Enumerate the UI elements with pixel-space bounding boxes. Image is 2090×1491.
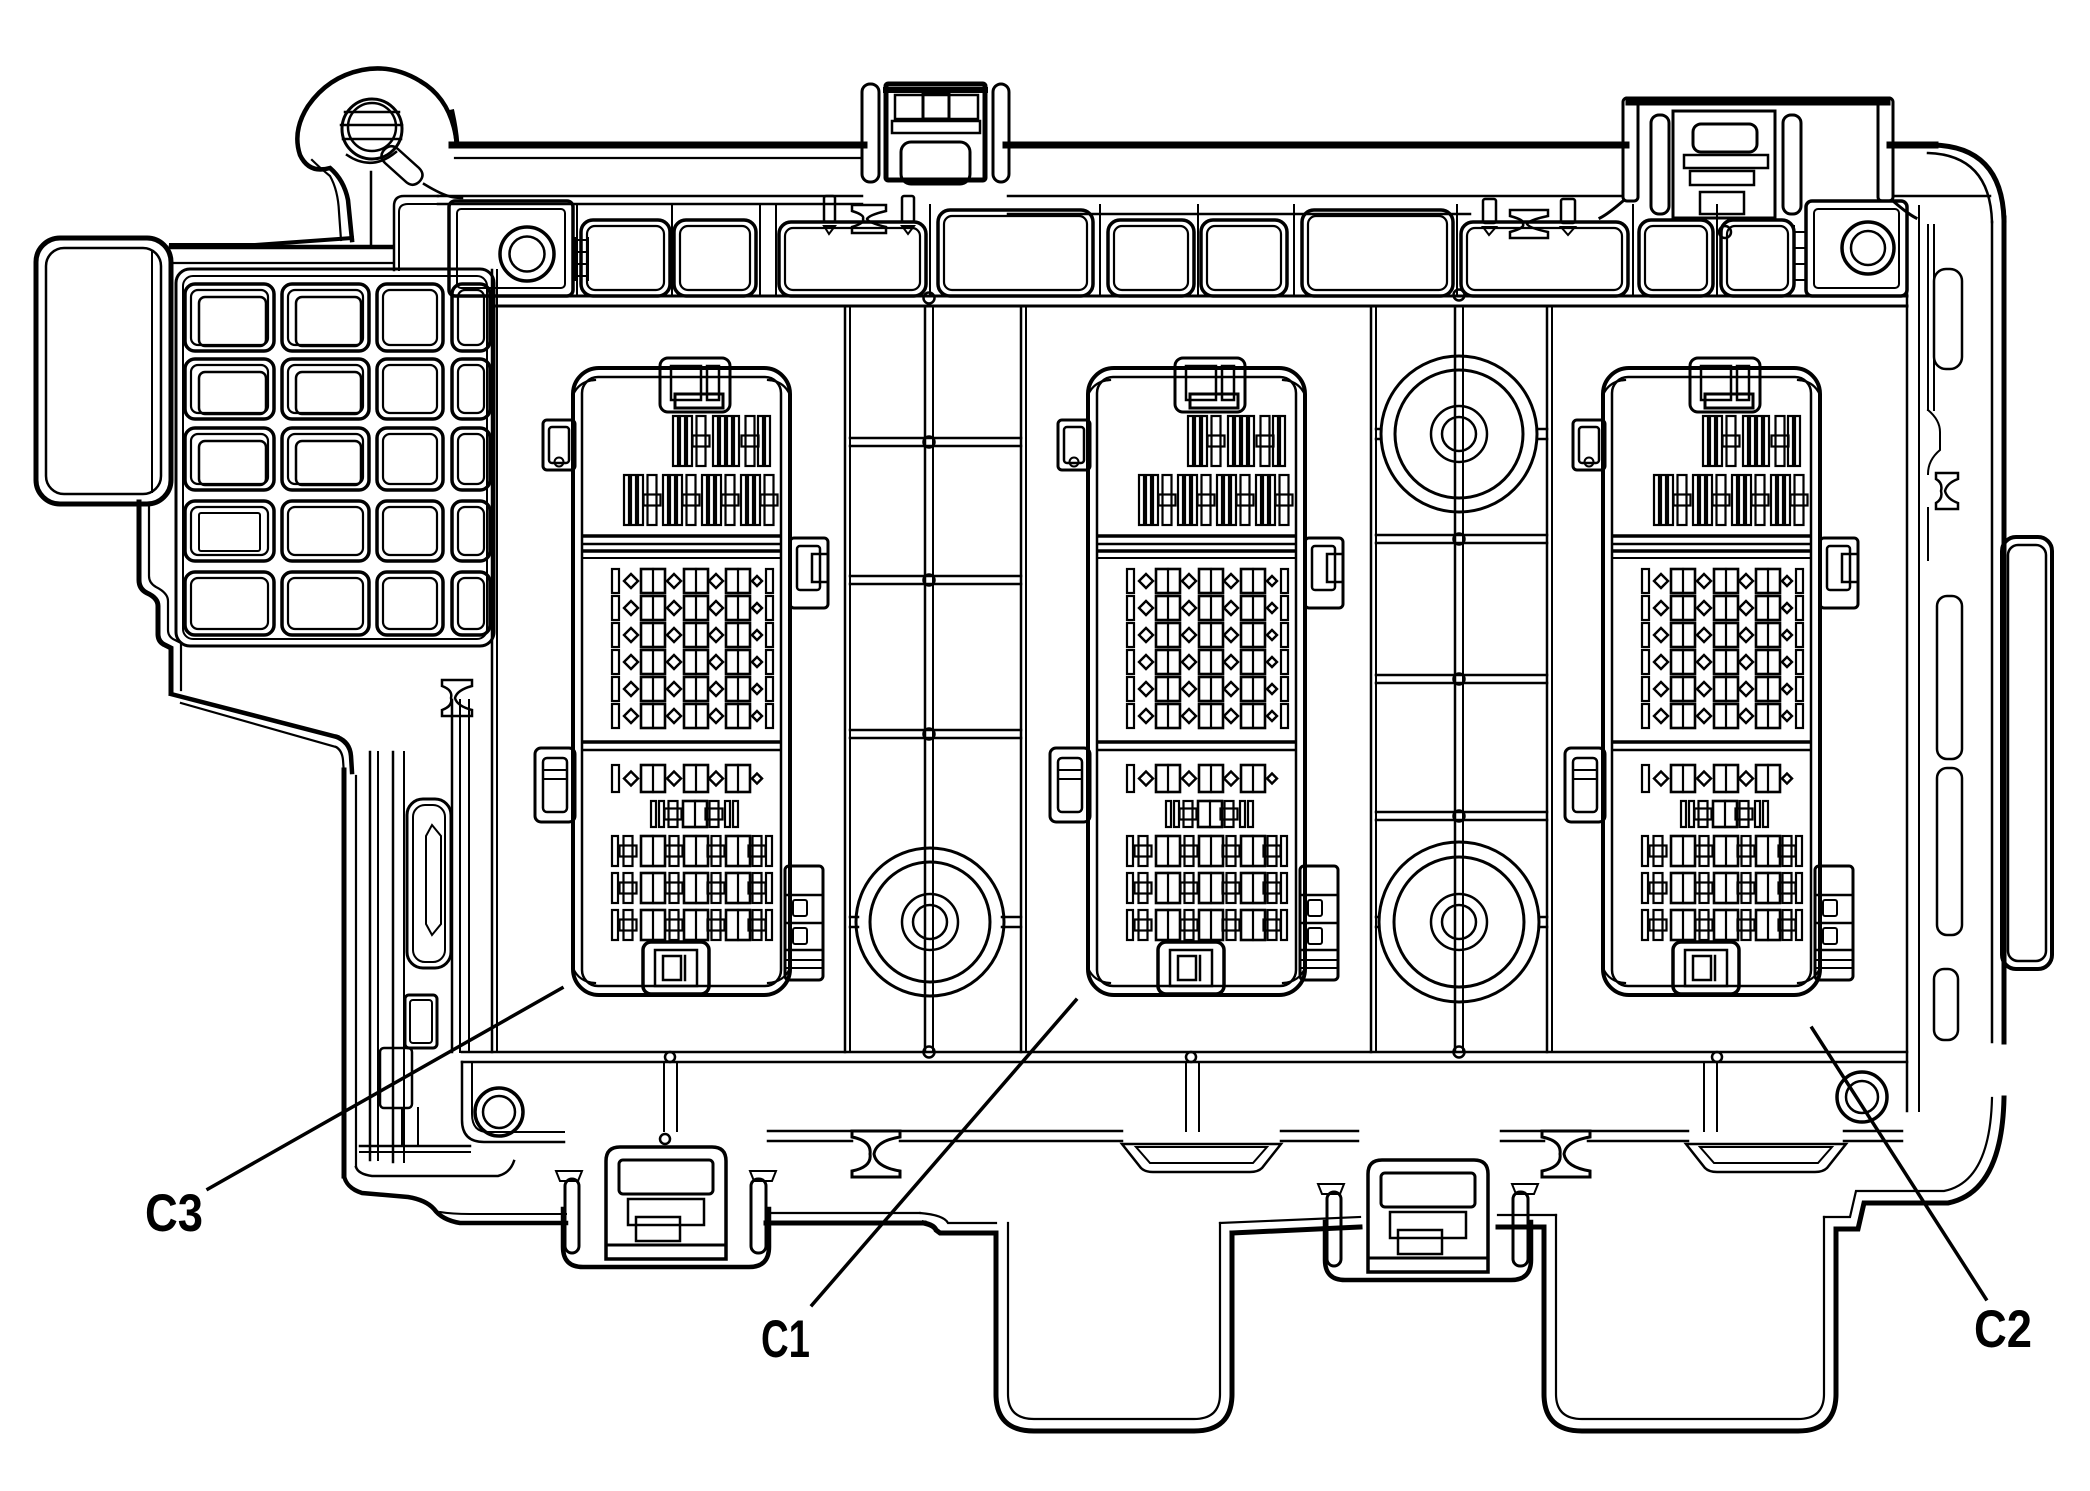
svg-text:C1: C1 — [761, 1310, 810, 1369]
svg-text:C3: C3 — [145, 1184, 203, 1243]
svg-text:C2: C2 — [1974, 1300, 2032, 1359]
